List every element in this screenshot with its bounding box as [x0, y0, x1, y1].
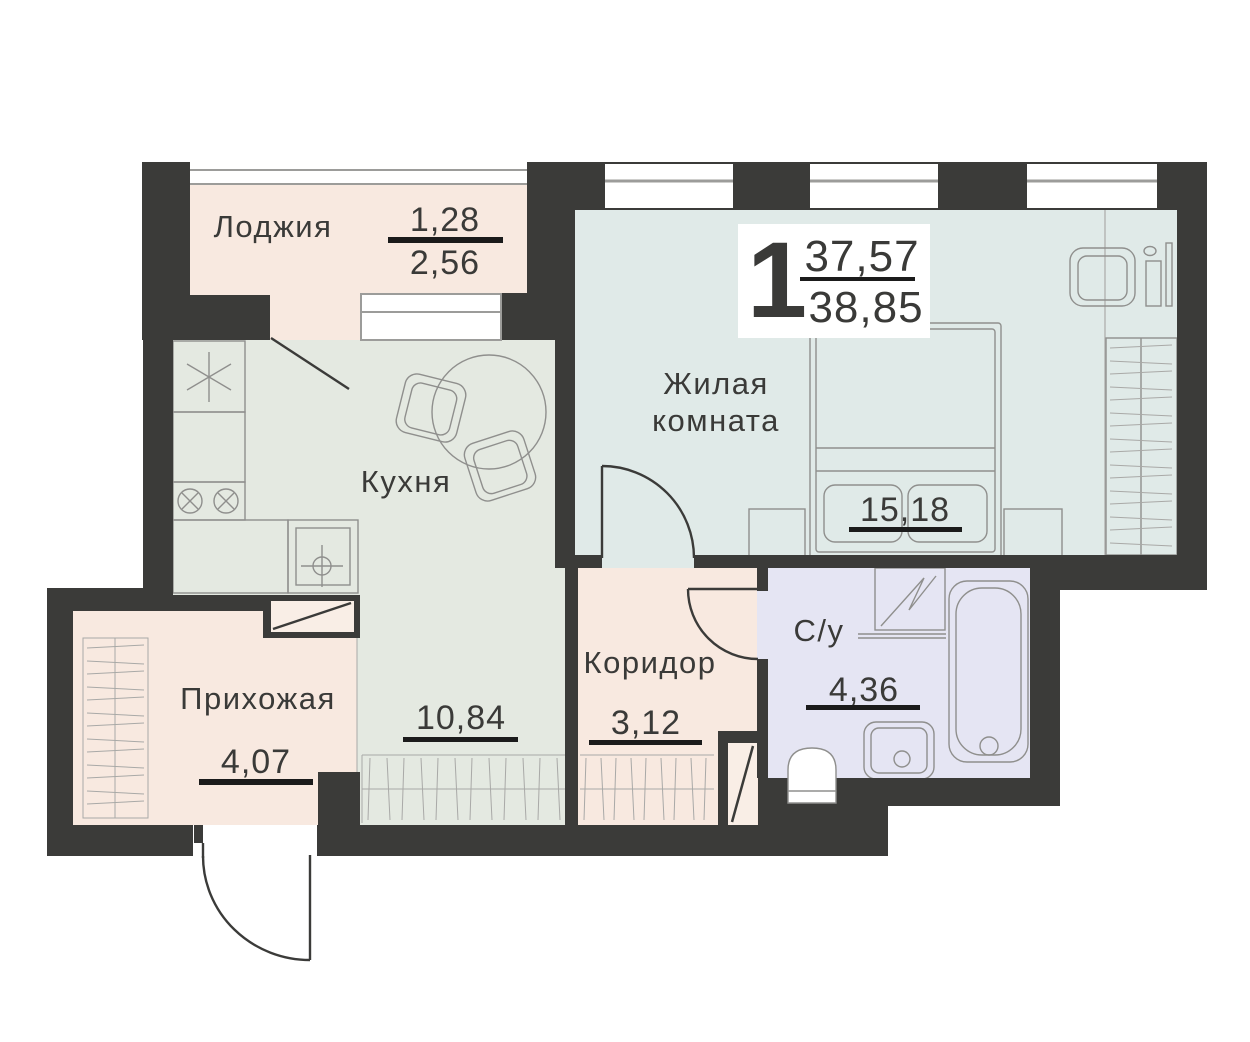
living-label-line2: комната [652, 403, 780, 438]
kitchen-area: 10,84 [416, 699, 506, 737]
living-door-threshold [602, 553, 694, 568]
kitchen-label: Кухня [361, 464, 451, 499]
loggia-fraction-line [388, 237, 503, 243]
living-window [605, 164, 733, 208]
floor-plan: 1 37,57 38,85 Лоджия 1,28 2,56 Кухня 10,… [0, 0, 1250, 1042]
hallway-area-underline [199, 779, 313, 785]
badge-fraction-line [800, 277, 915, 281]
corridor-label: Коридор [584, 645, 717, 680]
corridor-area: 3,12 [611, 704, 681, 742]
living-area: 15,18 [860, 491, 950, 529]
bathroom-door-threshold [757, 591, 768, 659]
bathroom-area-underline [806, 705, 920, 710]
corridor-cabinet [728, 743, 757, 825]
toilet-icon [788, 748, 836, 803]
bathroom-label: С/у [794, 613, 845, 648]
hallway-label: Прихожая [180, 681, 336, 716]
loggia-area-full: 2,56 [410, 244, 480, 282]
loggia-area-reduced: 1,28 [410, 201, 480, 239]
badge-living-area: 37,57 [804, 232, 919, 281]
hallway-area: 4,07 [221, 743, 291, 781]
corridor-area-underline [589, 740, 702, 745]
hallway-shelf [271, 601, 354, 632]
entrance-door [203, 843, 310, 960]
bathroom-area: 4,36 [829, 671, 899, 709]
loggia-label: Лоджия [214, 209, 333, 244]
living-window [810, 164, 938, 208]
living-window [1027, 164, 1157, 208]
living-area-underline [849, 527, 962, 532]
kitchen-loggia-window [361, 294, 501, 340]
living-label-line1: Жилая [663, 366, 769, 401]
badge-room-count: 1 [747, 219, 807, 340]
badge-total-area: 38,85 [808, 283, 923, 332]
kitchen-area-underline [403, 737, 518, 742]
loggia-window-band [190, 162, 527, 185]
apartment-badge: 1 37,57 38,85 [738, 219, 930, 340]
floor-plan-page: 1 37,57 38,85 Лоджия 1,28 2,56 Кухня 10,… [0, 0, 1250, 1042]
